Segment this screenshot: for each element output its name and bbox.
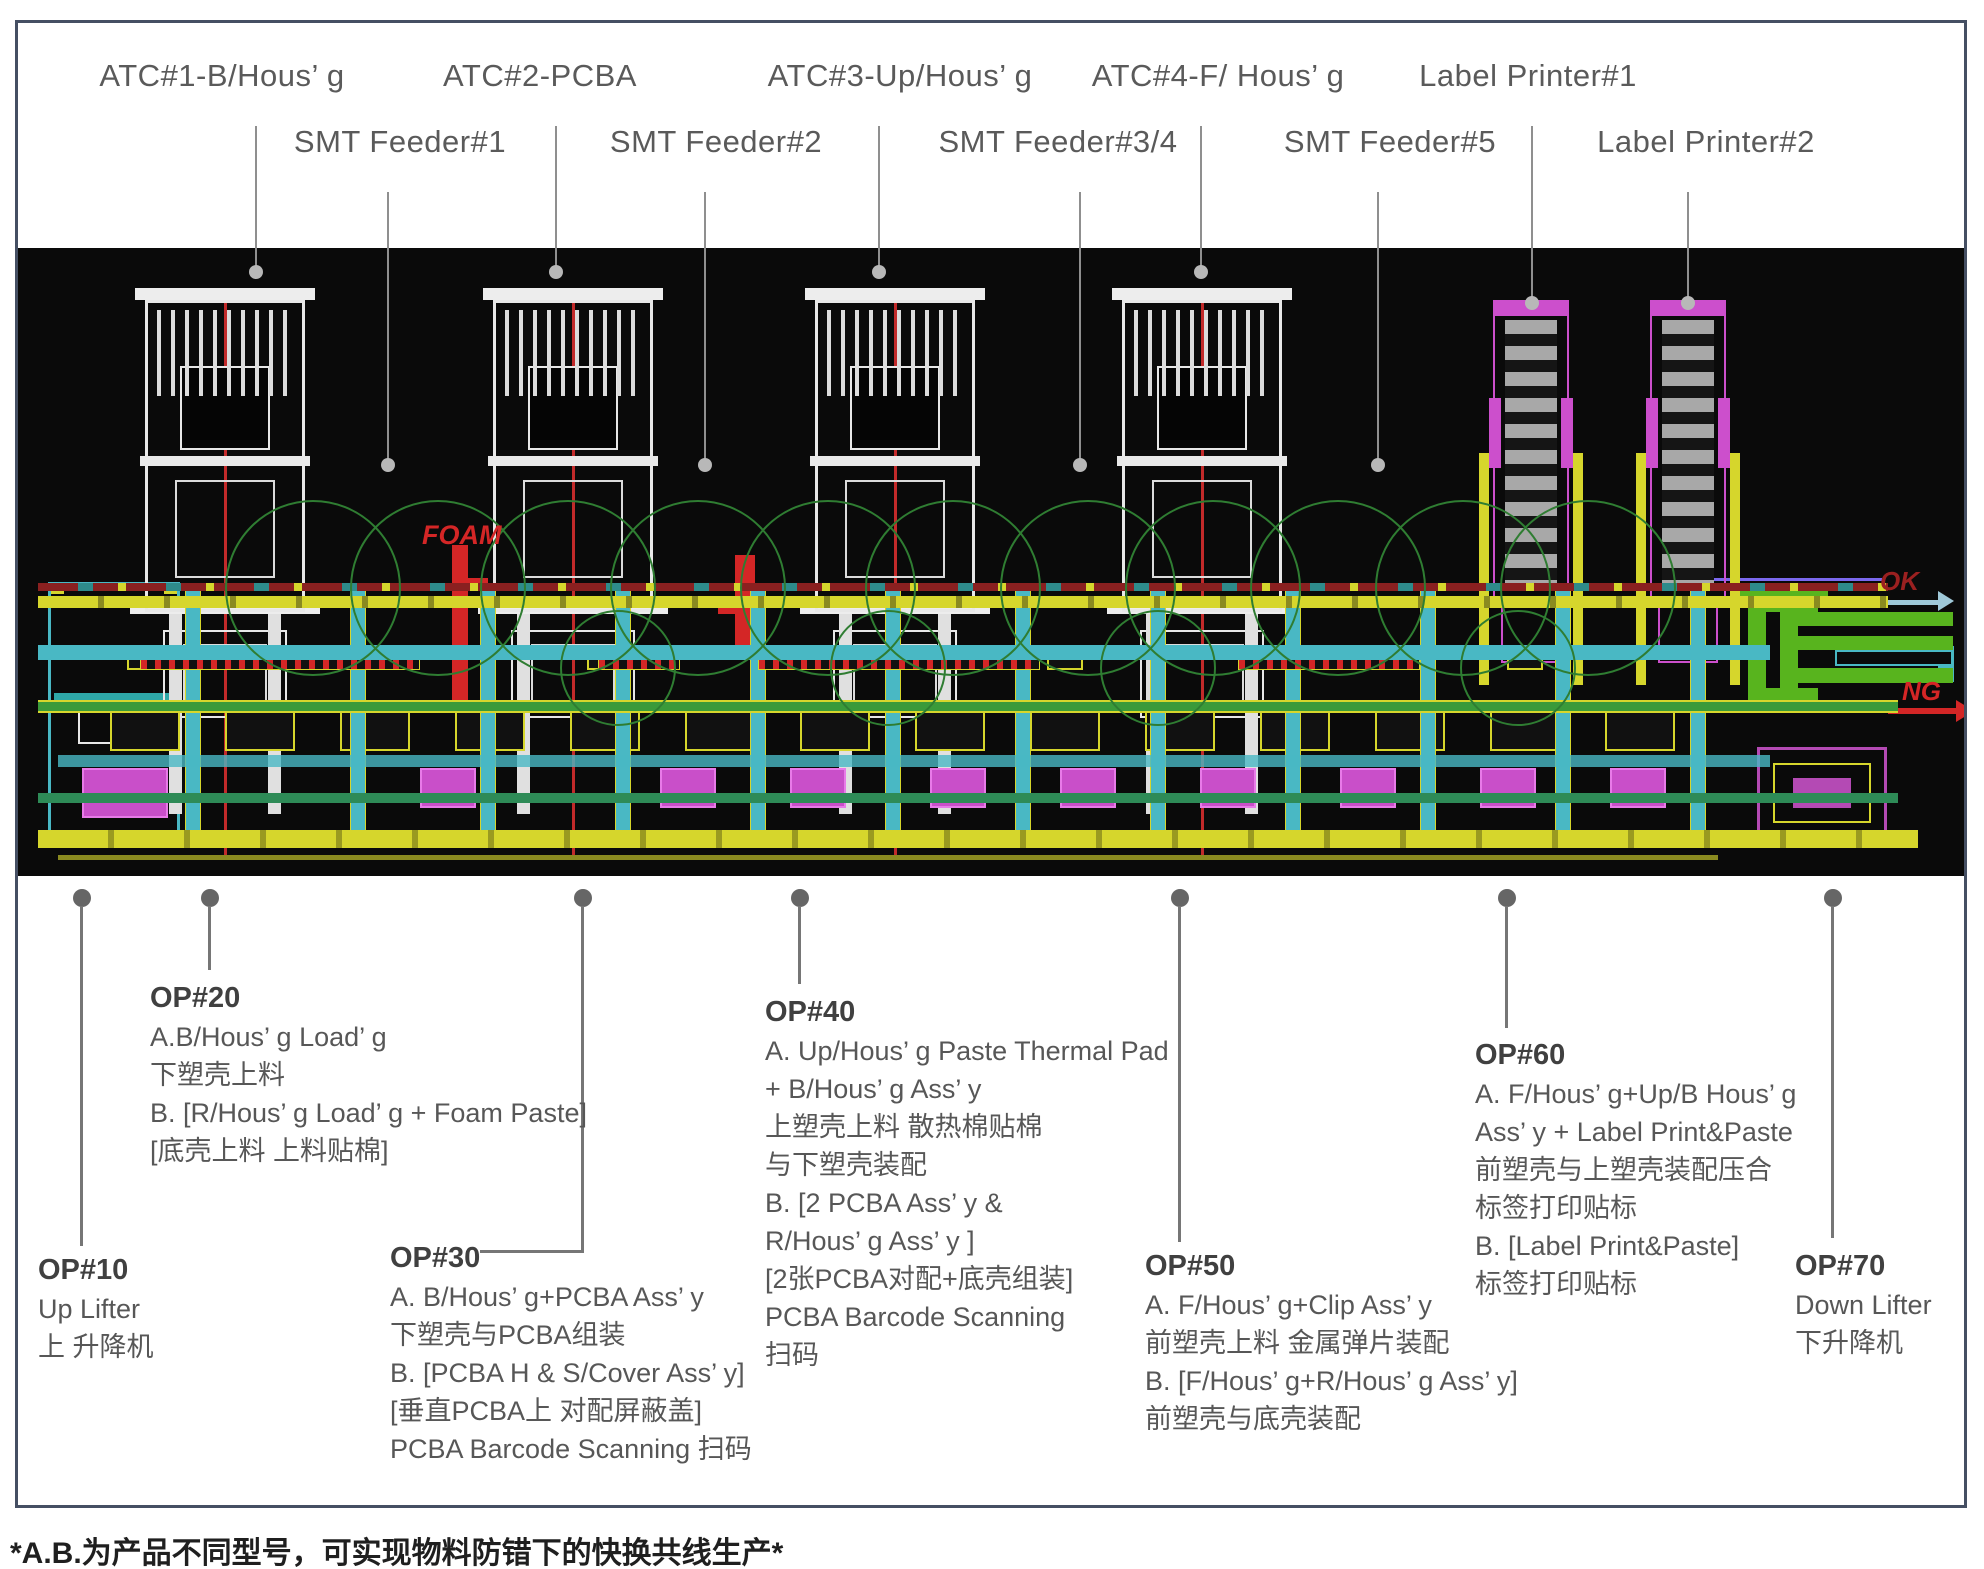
leader-printer1 bbox=[1531, 126, 1533, 300]
op60-title: OP#60 bbox=[1475, 1035, 1796, 1075]
conveyor-cyan-band2 bbox=[58, 755, 1770, 767]
label-printer1: Label Printer#1 bbox=[1419, 58, 1637, 94]
op40-line: + B/Hous’ g Ass’ y bbox=[765, 1070, 1169, 1108]
op40-title: OP#40 bbox=[765, 992, 1169, 1032]
leader-dot-smt5 bbox=[1371, 458, 1385, 472]
exit-green bbox=[1780, 600, 1798, 700]
op20-line: A.B/Hous’ g Load’ g bbox=[150, 1018, 587, 1056]
op30-line: B. [PCBA H & S/Cover Ass’ y] bbox=[390, 1354, 752, 1392]
leader-dot-op40 bbox=[791, 889, 809, 907]
op50-line: B. [F/Hous’ g+R/Hous’ g Ass’ y] bbox=[1145, 1362, 1518, 1400]
leader-dot-op70 bbox=[1824, 889, 1842, 907]
leader-dot-op10 bbox=[73, 889, 91, 907]
op40-line: R/Hous’ g Ass’ y ] bbox=[765, 1222, 1169, 1260]
foam-label: FOAM bbox=[422, 520, 501, 551]
op30-title: OP#30 bbox=[390, 1238, 752, 1278]
leader-smt2 bbox=[704, 192, 706, 460]
op20-line: 下塑壳上料 bbox=[150, 1056, 587, 1094]
leader-dot-atc1 bbox=[249, 265, 263, 279]
op40-line: A. Up/Hous’ g Paste Thermal Pad bbox=[765, 1032, 1169, 1070]
ok-label: OK bbox=[1880, 566, 1919, 597]
op10-line: Up Lifter bbox=[38, 1290, 154, 1328]
op70-line: Down Lifter bbox=[1795, 1286, 1932, 1324]
leader-printer2 bbox=[1687, 192, 1689, 300]
op10-title: OP#10 bbox=[38, 1250, 154, 1290]
op40-line: [2张PCBA对配+底壳组装] bbox=[765, 1260, 1169, 1298]
op40-line: 上塑壳上料 散热棉贴棉 bbox=[765, 1108, 1169, 1146]
leader-dot-smt2 bbox=[698, 458, 712, 472]
conveyor-post bbox=[185, 590, 201, 848]
op10-block: OP#10 Up Lifter 上 升降机 bbox=[38, 1250, 154, 1366]
exit-green-bar bbox=[1795, 636, 1953, 650]
op70-block: OP#70 Down Lifter 下升降机 bbox=[1795, 1246, 1932, 1362]
leader-dot-printer1 bbox=[1525, 296, 1539, 310]
op50-title: OP#50 bbox=[1145, 1246, 1518, 1286]
label-atc4: ATC#4-F/ Hous’ g bbox=[1092, 58, 1345, 94]
op30-line: PCBA Barcode Scanning 扫码 bbox=[390, 1430, 752, 1468]
op30-line: [垂直PCBA上 对配屏蔽盖] bbox=[390, 1392, 752, 1430]
label-atc2: ATC#2-PCBA bbox=[443, 58, 637, 94]
op40-line: 扫码 bbox=[765, 1336, 1169, 1374]
robot-envelope-circle bbox=[225, 500, 401, 676]
op40-line: B. [2 PCBA Ass’ y & bbox=[765, 1184, 1169, 1222]
conveyor-green-band bbox=[38, 700, 1898, 713]
leader-smt5 bbox=[1377, 192, 1379, 460]
leader-op40 bbox=[798, 906, 801, 984]
label-smt-feeder34: SMT Feeder#3/4 bbox=[938, 124, 1177, 160]
op50-line: 前塑壳与底壳装配 bbox=[1145, 1400, 1518, 1438]
leader-smt1 bbox=[387, 192, 389, 460]
leader-dot-op20 bbox=[201, 889, 219, 907]
op60-line: 前塑壳与上塑壳装配压合 bbox=[1475, 1151, 1796, 1189]
label-smt-feeder1: SMT Feeder#1 bbox=[294, 124, 506, 160]
op40-line: 与下塑壳装配 bbox=[765, 1146, 1169, 1184]
op20-line: B. [R/Hous’ g Load’ g + Foam Paste] bbox=[150, 1094, 587, 1132]
label-smt-feeder5: SMT Feeder#5 bbox=[1284, 124, 1496, 160]
atc-tower-cap bbox=[135, 288, 315, 300]
op50-line: A. F/Hous’ g+Clip Ass’ y bbox=[1145, 1286, 1518, 1324]
op60-line: Ass’ y + Label Print&Paste bbox=[1475, 1113, 1796, 1151]
leader-op50 bbox=[1178, 906, 1181, 1242]
op30-block: OP#30 A. B/Hous’ g+PCBA Ass’ y 下塑壳与PCBA组… bbox=[390, 1238, 752, 1468]
conveyor-green-line bbox=[38, 793, 1898, 803]
op40-line: PCBA Barcode Scanning bbox=[765, 1298, 1169, 1336]
leader-atc2 bbox=[555, 126, 557, 268]
production-line-diagram: FOAM OK NG ATC#1-B/Hous’ g ATC#2-PCBA AT… bbox=[0, 0, 1984, 1569]
op30-line: 下塑壳与PCBA组装 bbox=[390, 1316, 752, 1354]
leader-op70 bbox=[1831, 906, 1834, 1238]
op70-line: 下升降机 bbox=[1795, 1324, 1932, 1362]
op70-title: OP#70 bbox=[1795, 1246, 1932, 1286]
leader-op60 bbox=[1505, 906, 1508, 1028]
op60-line: 标签打印贴标 bbox=[1475, 1189, 1796, 1227]
conveyor-post bbox=[1690, 590, 1706, 848]
op40-block: OP#40 A. Up/Hous’ g Paste Thermal Pad + … bbox=[765, 992, 1169, 1374]
cad-layout-canvas: FOAM OK NG bbox=[18, 248, 1964, 876]
exit-green-bar bbox=[1795, 612, 1953, 626]
leader-dot-atc2 bbox=[549, 265, 563, 279]
leader-dot-op30 bbox=[574, 889, 592, 907]
atc-tower-cap bbox=[1112, 288, 1292, 300]
op10-line: 上 升降机 bbox=[38, 1328, 154, 1366]
op50-line: 前塑壳上料 金属弹片装配 bbox=[1145, 1324, 1518, 1362]
footnote: *A.B.为产品不同型号，可实现物料防错下的快换共线生产* bbox=[10, 1528, 783, 1569]
label-printer2: Label Printer#2 bbox=[1597, 124, 1815, 160]
leader-atc3 bbox=[878, 126, 880, 268]
label-atc1: ATC#1-B/Hous’ g bbox=[99, 58, 344, 94]
leader-dot-atc4 bbox=[1194, 265, 1208, 279]
leader-dot-printer2 bbox=[1681, 296, 1695, 310]
conveyor-base-line bbox=[58, 855, 1718, 860]
op60-block: OP#60 A. F/Hous’ g+Up/B Hous’ g Ass’ y +… bbox=[1475, 1035, 1796, 1303]
op60-line: A. F/Hous’ g+Up/B Hous’ g bbox=[1475, 1075, 1796, 1113]
op60-line: B. [Label Print&Paste] bbox=[1475, 1227, 1796, 1265]
op20-line: [底壳上料 上料贴棉] bbox=[150, 1132, 587, 1170]
leader-atc1 bbox=[255, 126, 257, 268]
ng-label: NG bbox=[1902, 676, 1941, 707]
leader-smt34 bbox=[1079, 192, 1081, 460]
label-smt-feeder2: SMT Feeder#2 bbox=[610, 124, 822, 160]
leader-dot-op50 bbox=[1171, 889, 1189, 907]
atc-tower-cap bbox=[805, 288, 985, 300]
conveyor-floor-rail bbox=[38, 830, 1918, 848]
ng-arrow-head bbox=[1956, 700, 1964, 722]
op30-line: A. B/Hous’ g+PCBA Ass’ y bbox=[390, 1278, 752, 1316]
op60-line: 标签打印贴标 bbox=[1475, 1265, 1796, 1303]
leader-dot-smt34 bbox=[1073, 458, 1087, 472]
op50-block: OP#50 A. F/Hous’ g+Clip Ass’ y 前塑壳上料 金属弹… bbox=[1145, 1246, 1518, 1438]
exit-track bbox=[1835, 650, 1953, 666]
leader-dot-op60 bbox=[1498, 889, 1516, 907]
ng-arrow bbox=[1888, 708, 1956, 714]
op20-title: OP#20 bbox=[150, 978, 587, 1018]
leader-dot-atc3 bbox=[872, 265, 886, 279]
label-atc3: ATC#3-Up/Hous’ g bbox=[768, 58, 1033, 94]
atc-tower-cap bbox=[483, 288, 663, 300]
leader-atc4 bbox=[1200, 126, 1202, 268]
leader-op10 bbox=[80, 906, 83, 1246]
leader-op20 bbox=[208, 906, 211, 970]
op20-block: OP#20 A.B/Hous’ g Load’ g 下塑壳上料 B. [R/Ho… bbox=[150, 978, 587, 1170]
leader-dot-smt1 bbox=[381, 458, 395, 472]
ok-arrow-head bbox=[1938, 591, 1954, 611]
